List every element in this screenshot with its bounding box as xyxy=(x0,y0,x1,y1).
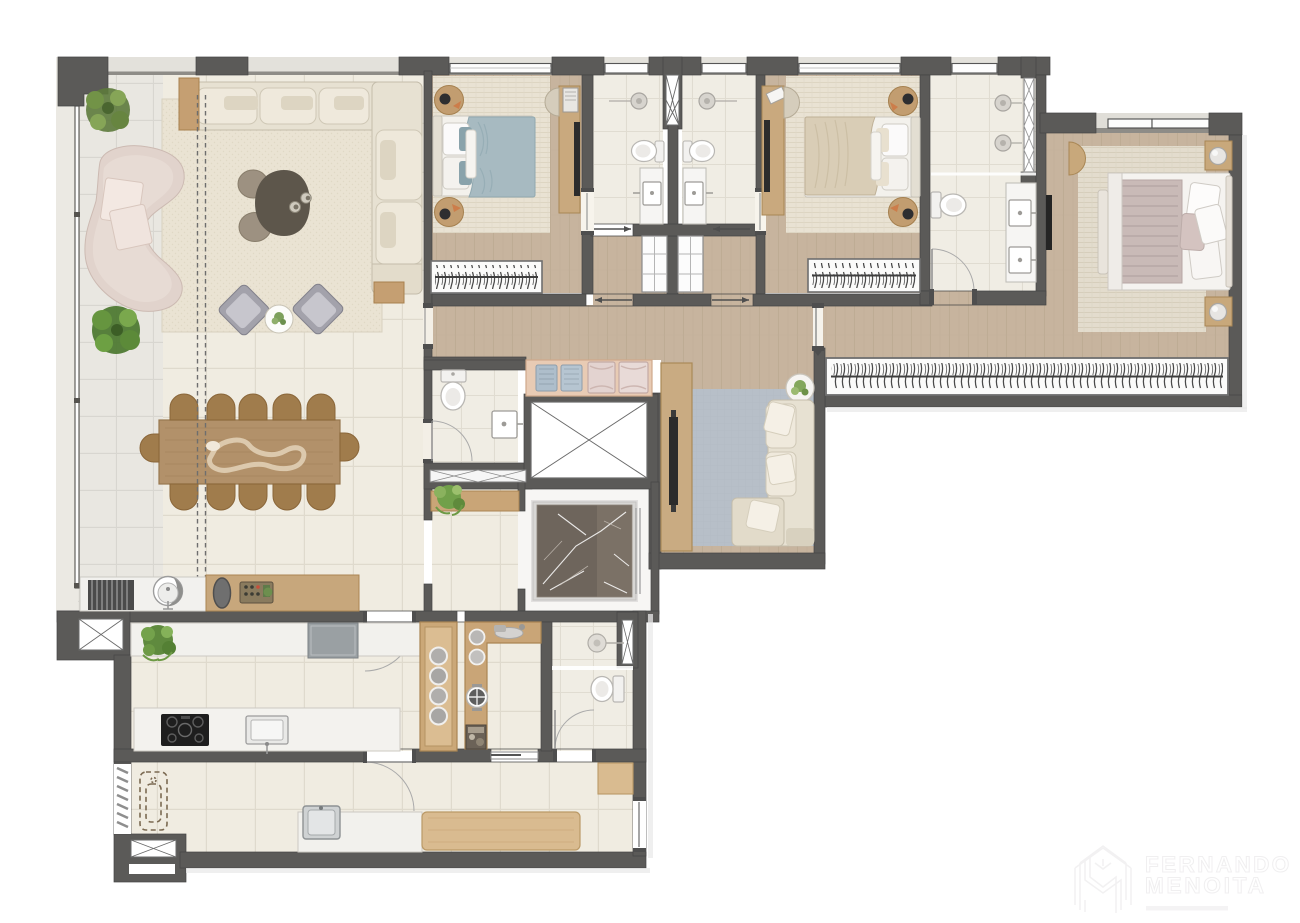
svg-text:MENOITA: MENOITA xyxy=(1145,873,1267,898)
